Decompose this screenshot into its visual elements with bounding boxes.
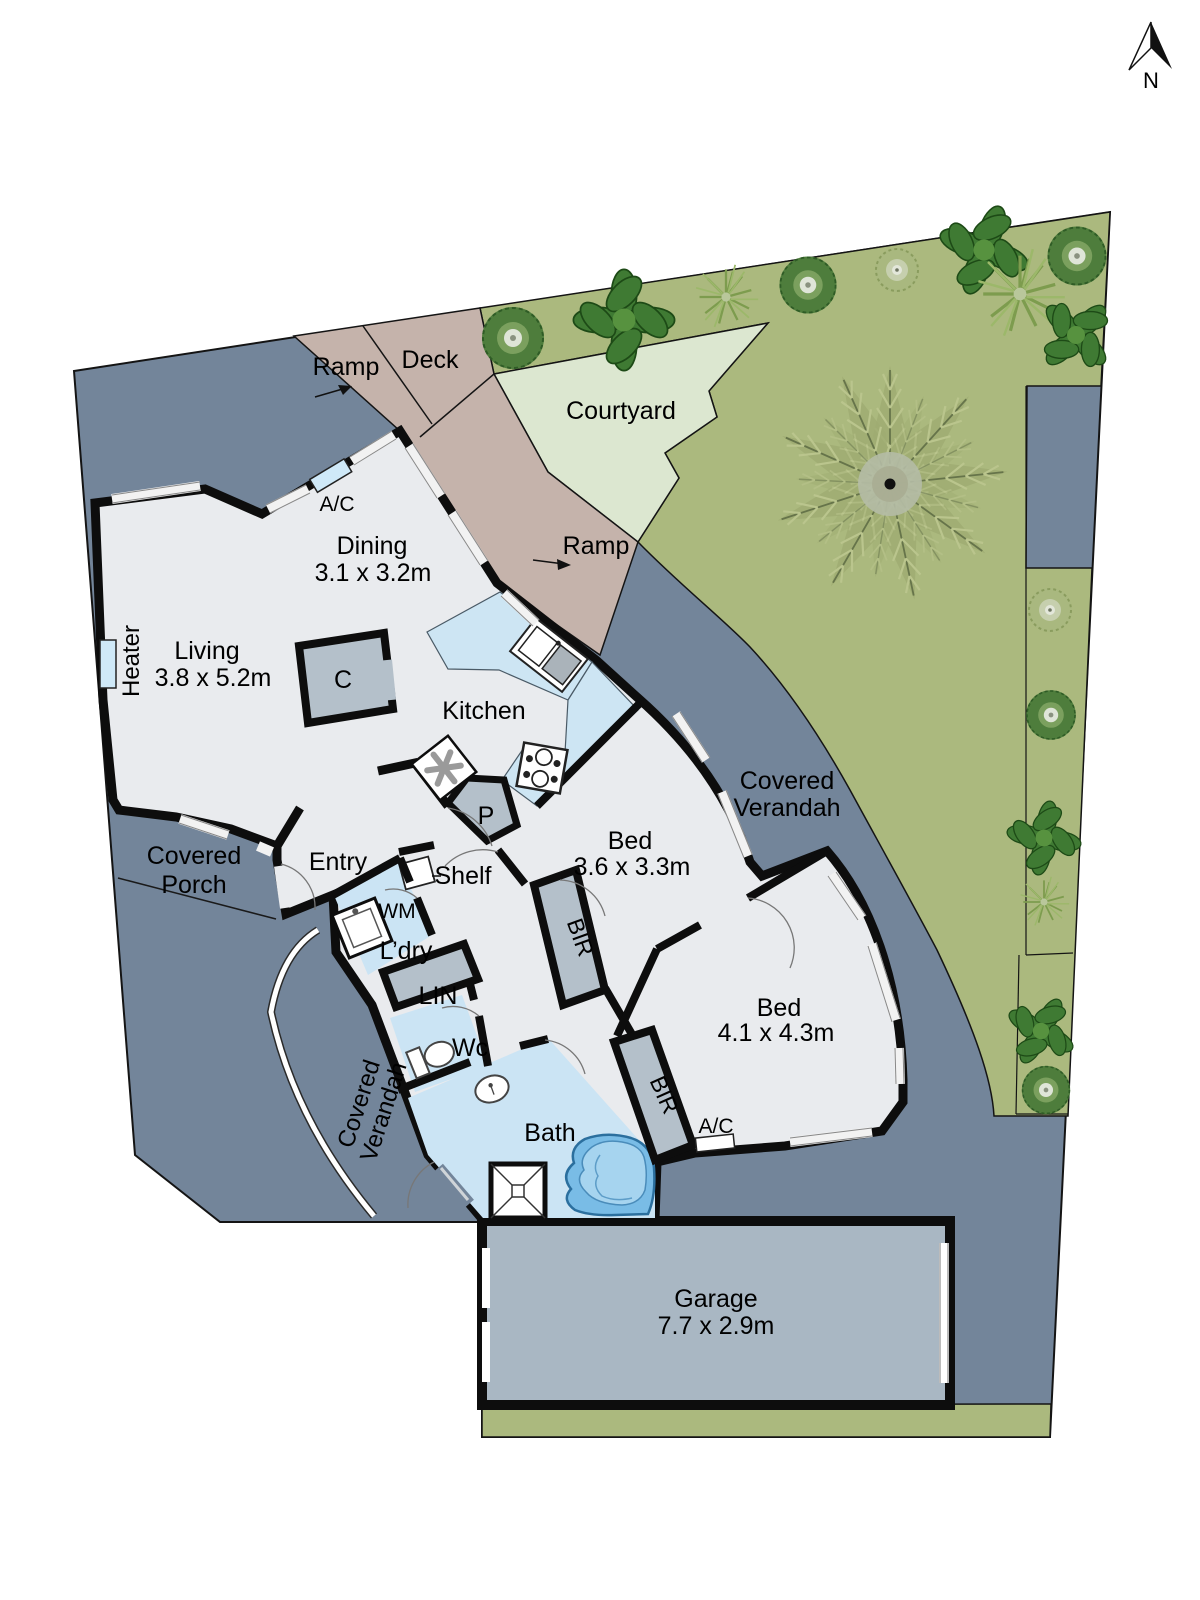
svg-text:Ramp: Ramp — [563, 532, 630, 560]
svg-text:Bed: Bed — [757, 994, 801, 1022]
svg-text:Heater: Heater — [118, 625, 145, 697]
svg-text:Porch: Porch — [161, 871, 226, 899]
svg-text:N: N — [1143, 68, 1159, 93]
svg-text:C: C — [334, 666, 352, 694]
svg-text:Entry: Entry — [309, 848, 368, 876]
svg-text:Garage: Garage — [674, 1285, 757, 1313]
svg-text:Living: Living — [174, 637, 239, 665]
svg-text:Wc: Wc — [452, 1034, 488, 1062]
svg-text:Covered: Covered — [147, 842, 242, 870]
svg-text:3.1 x 3.2m: 3.1 x 3.2m — [315, 559, 432, 587]
svg-text:Verandah: Verandah — [733, 794, 840, 822]
svg-text:Dining: Dining — [337, 532, 408, 560]
svg-text:3.6 x 3.3m: 3.6 x 3.3m — [574, 853, 691, 881]
svg-text:Shelf: Shelf — [435, 862, 492, 890]
svg-text:7.7 x 2.9m: 7.7 x 2.9m — [658, 1312, 775, 1340]
svg-text:3.8 x 5.2m: 3.8 x 5.2m — [155, 664, 272, 692]
svg-text:WM: WM — [378, 900, 415, 923]
svg-text:Bed: Bed — [608, 827, 652, 855]
svg-text:4.1 x 4.3m: 4.1 x 4.3m — [718, 1019, 835, 1047]
svg-text:Covered: Covered — [740, 767, 835, 795]
svg-text:Ramp: Ramp — [313, 353, 380, 381]
svg-text:L’dry: L’dry — [380, 937, 433, 965]
svg-text:Bath: Bath — [524, 1119, 575, 1147]
svg-text:Kitchen: Kitchen — [442, 697, 525, 725]
svg-text:Deck: Deck — [402, 346, 459, 374]
svg-text:P: P — [478, 802, 495, 830]
svg-text:A/C: A/C — [319, 493, 354, 516]
svg-text:Courtyard: Courtyard — [566, 397, 676, 425]
svg-text:LIN: LIN — [419, 982, 458, 1010]
svg-text:A/C: A/C — [698, 1115, 733, 1138]
